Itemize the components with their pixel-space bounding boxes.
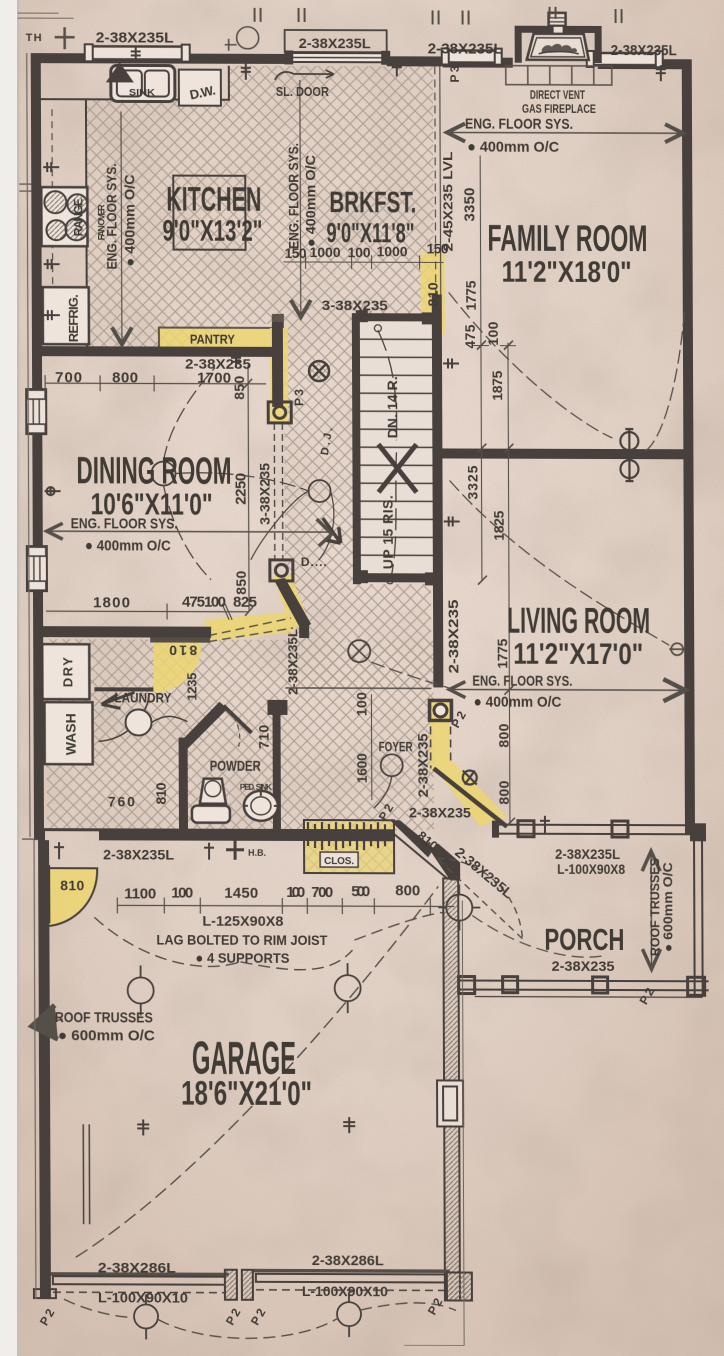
svg-text:810: 810 [153,782,169,804]
svg-text:L-100X90X10: L-100X90X10 [302,1283,388,1299]
svg-text:850: 850 [231,376,247,400]
svg-text:L-100X90X8: L-100X90X8 [557,861,625,877]
svg-text:3350: 3350 [461,188,478,222]
svg-text:L-125X90X8: L-125X90X8 [202,913,283,929]
svg-text:SL. DOOR: SL. DOOR [276,84,330,99]
svg-text:1100: 1100 [124,885,156,902]
svg-text:9'0"X13'2": 9'0"X13'2" [162,215,262,248]
svg-text:2-38X235L: 2-38X235L [96,29,174,46]
svg-text:18'6"X21'0": 18'6"X21'0" [181,1075,312,1113]
svg-text:1450: 1450 [224,885,258,902]
svg-text:100: 100 [353,692,369,716]
svg-text:● 400mm O/C: ● 400mm O/C [85,537,171,554]
svg-text:2-38X235L: 2-38X235L [555,846,620,862]
svg-text:2250: 2250 [232,473,249,505]
svg-text:FAMILY ROOM: FAMILY ROOM [487,218,647,260]
svg-text:2-38X235L: 2-38X235L [299,35,372,51]
svg-text:L-100X90X10: L-100X90X10 [98,1289,188,1305]
svg-text:150: 150 [285,245,307,261]
svg-text:2-38X235: 2-38X235 [415,733,431,797]
svg-text:LIVING ROOM: LIVING ROOM [507,600,650,641]
svg-text:475: 475 [182,594,205,611]
svg-text:100: 100 [171,885,193,902]
svg-text:2-38X235: 2-38X235 [445,599,461,673]
svg-text:760: 760 [108,793,135,809]
svg-text:TH: TH [26,32,42,44]
svg-text:REFRIG.: REFRIG. [66,294,81,342]
svg-text:2-45X235 LVL: 2-45X235 LVL [440,151,455,251]
svg-text:100: 100 [204,594,226,611]
svg-text:2-38X235L: 2-38X235L [285,629,300,695]
svg-text:800: 800 [395,882,420,899]
svg-text:1235: 1235 [184,673,199,701]
svg-text:810: 810 [60,877,84,893]
svg-text:475: 475 [462,324,478,348]
svg-text:BRKFST.: BRKFST. [329,186,416,219]
svg-text:LAUNDRY: LAUNDRY [114,689,172,705]
svg-text:100: 100 [485,321,501,345]
svg-text:POWDER: POWDER [210,758,261,775]
svg-text:RANGE: RANGE [71,198,85,236]
svg-text:850: 850 [233,571,249,595]
svg-text:1875: 1875 [489,370,505,400]
svg-text:11'2"X18'0": 11'2"X18'0" [502,256,632,289]
svg-text:D....: D.... [301,555,327,569]
svg-text:PED. SINK: PED. SINK [240,783,272,792]
svg-text:DIRECT VENT: DIRECT VENT [530,88,586,102]
svg-text:PANTRY: PANTRY [190,332,235,347]
svg-text:1000: 1000 [377,243,408,259]
svg-text:KITCHEN: KITCHEN [166,181,261,219]
svg-text:H.B.: H.B. [248,848,266,858]
svg-text:800: 800 [112,369,138,386]
svg-text:1825: 1825 [491,510,507,540]
svg-text:ENG. FLOOR SYS.: ENG. FLOOR SYS. [103,163,119,269]
svg-text:150: 150 [427,240,449,256]
svg-text:● 400mm O/C: ● 400mm O/C [302,155,318,247]
svg-text:1775: 1775 [494,638,510,668]
svg-text:2-38X235L: 2-38X235L [428,40,503,57]
svg-text:ENG. FLOOR SYS.: ENG. FLOOR SYS. [285,143,301,249]
svg-text:11'2"X17'0": 11'2"X17'0" [513,638,643,671]
svg-text:2-38X235L: 2-38X235L [103,846,175,862]
svg-text:800: 800 [496,780,512,804]
svg-text:100: 100 [286,884,305,901]
svg-text:2-38X286L: 2-38X286L [98,1259,177,1275]
svg-text:810: 810 [425,282,441,306]
svg-text:ENG. FLOOR SYS.: ENG. FLOOR SYS. [472,673,572,690]
svg-text:● 4 SUPPORTS: ● 4 SUPPORTS [195,950,289,966]
svg-text:LAG BOLTED TO RIM JOIST: LAG BOLTED TO RIM JOIST [156,932,327,949]
svg-text:● 600mm O/C: ● 600mm O/C [58,1027,155,1044]
svg-text:● 600mm O/C: ● 600mm O/C [660,862,675,953]
svg-text:710: 710 [256,725,272,749]
svg-text:2-38X235: 2-38X235 [552,958,615,974]
svg-text:2-38X286L: 2-38X286L [312,1252,385,1268]
svg-text:PORCH: PORCH [544,922,624,957]
svg-text:1700: 1700 [197,370,231,387]
svg-text:100: 100 [348,244,371,260]
svg-text:● 400mm O/C: ● 400mm O/C [473,694,561,711]
svg-text:1775: 1775 [463,280,479,310]
svg-text:3-38X235: 3-38X235 [322,297,388,313]
svg-text:GAS FIREPLACE: GAS FIREPLACE [522,102,596,116]
svg-text:3-38X235: 3-38X235 [256,463,272,525]
svg-text:ENG. FLOOR SYS.: ENG. FLOOR SYS. [465,116,573,133]
svg-text:● 400mm O/C: ● 400mm O/C [121,174,137,266]
svg-text:500: 500 [351,883,370,900]
svg-text:WASH: WASH [62,713,78,755]
svg-text:UP 15 RIS.: UP 15 RIS. [380,495,396,569]
svg-text:700: 700 [55,369,82,386]
svg-text:DRY: DRY [60,657,75,687]
svg-text:● 400mm O/C: ● 400mm O/C [467,139,559,156]
svg-text:1000: 1000 [310,244,341,260]
svg-text:700: 700 [311,884,333,901]
svg-text:1800: 1800 [93,594,130,611]
svg-text:3325: 3325 [464,465,480,499]
svg-text:1600: 1600 [354,753,370,783]
svg-text:ROOF TRUSSES: ROOF TRUSSES [55,1009,153,1026]
svg-text:810: 810 [169,643,197,659]
svg-text:SINK: SINK [129,87,155,98]
svg-text:800: 800 [496,723,512,747]
svg-text:DN. 14 R.: DN. 14 R. [384,376,400,438]
svg-text:825: 825 [233,594,257,611]
svg-text:CLOS.: CLOS. [324,856,354,867]
svg-text:ENG. FLOOR SYS.: ENG. FLOOR SYS. [71,515,178,532]
svg-text:FOYER: FOYER [379,738,413,754]
svg-text:2-38X235L: 2-38X235L [611,42,677,59]
svg-text:2-38X235: 2-38X235 [409,805,472,820]
